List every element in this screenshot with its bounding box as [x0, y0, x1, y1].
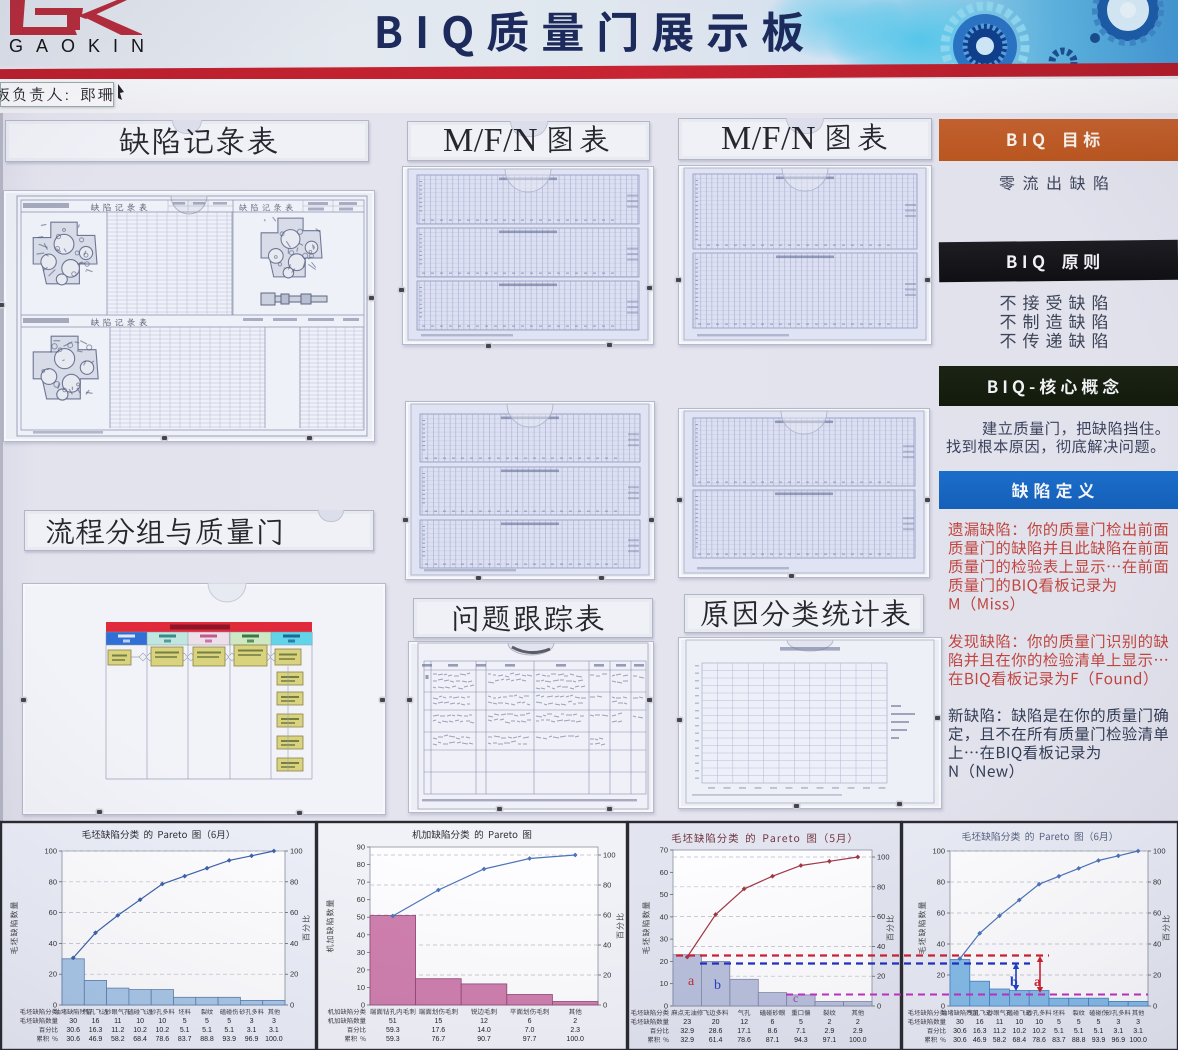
svg-text:40: 40	[357, 930, 365, 939]
svg-text:3.1: 3.1	[1133, 1028, 1143, 1035]
svg-text:60: 60	[660, 868, 668, 877]
svg-text:16: 16	[92, 1018, 100, 1025]
svg-text:10.2: 10.2	[1032, 1028, 1046, 1035]
svg-text:12: 12	[480, 1018, 488, 1025]
svg-text:51: 51	[389, 1018, 397, 1025]
svg-text:40: 40	[603, 941, 611, 950]
svg-text:78.6: 78.6	[1032, 1037, 1046, 1044]
svg-text:M/F/N: M/F/N	[721, 120, 816, 157]
svg-text:3: 3	[1116, 1019, 1120, 1026]
svg-text:23: 23	[683, 1019, 691, 1026]
svg-text:40: 40	[937, 940, 945, 949]
svg-text:3: 3	[250, 1018, 254, 1025]
svg-text:100: 100	[44, 847, 57, 856]
svg-text:68.4: 68.4	[133, 1036, 147, 1043]
svg-text:96.9: 96.9	[1111, 1037, 1125, 1044]
svg-text:83.7: 83.7	[178, 1036, 192, 1043]
svg-text:0: 0	[877, 1002, 881, 1011]
svg-text:100.0: 100.0	[566, 1036, 584, 1043]
svg-text:59.3: 59.3	[386, 1027, 400, 1034]
svg-text:6: 6	[771, 1019, 775, 1026]
svg-text:30.6: 30.6	[953, 1028, 967, 1035]
svg-text:30.6: 30.6	[66, 1027, 80, 1034]
svg-text:20: 20	[290, 970, 298, 979]
svg-text:10: 10	[158, 1018, 166, 1025]
svg-text:50: 50	[357, 913, 365, 922]
svg-text:10: 10	[660, 979, 668, 988]
svg-text:59.3: 59.3	[386, 1036, 400, 1043]
svg-text:80: 80	[290, 877, 298, 886]
svg-text:80: 80	[1153, 878, 1161, 887]
svg-text:5.1: 5.1	[202, 1027, 212, 1034]
svg-text:46.9: 46.9	[89, 1036, 103, 1043]
svg-text:0: 0	[53, 1001, 57, 1010]
svg-text:3.1: 3.1	[1113, 1028, 1123, 1035]
svg-text:70: 70	[357, 878, 365, 887]
svg-text:30: 30	[956, 1019, 964, 1026]
svg-text:100: 100	[603, 851, 616, 860]
svg-text:8.6: 8.6	[768, 1028, 778, 1035]
svg-text:2: 2	[827, 1019, 831, 1026]
svg-text:10: 10	[136, 1018, 144, 1025]
svg-text:2: 2	[573, 1018, 577, 1025]
svg-text:80: 80	[49, 877, 57, 886]
svg-text:60: 60	[290, 908, 298, 917]
svg-text:58.2: 58.2	[993, 1037, 1007, 1044]
svg-text:76.7: 76.7	[432, 1036, 446, 1043]
svg-text:20: 20	[877, 972, 885, 981]
svg-text:96.9: 96.9	[245, 1036, 259, 1043]
svg-text:40: 40	[49, 939, 57, 948]
svg-text:10: 10	[1035, 1019, 1043, 1026]
svg-text:32.9: 32.9	[680, 1037, 694, 1044]
svg-text:30: 30	[357, 948, 365, 957]
svg-text:20: 20	[1153, 971, 1161, 980]
svg-text:16: 16	[976, 1019, 984, 1026]
svg-text:17.6: 17.6	[432, 1027, 446, 1034]
svg-text:88.8: 88.8	[200, 1036, 214, 1043]
svg-text:97.1: 97.1	[823, 1037, 837, 1044]
svg-text:30: 30	[69, 1018, 77, 1025]
svg-text:0: 0	[941, 1002, 945, 1011]
svg-text:5: 5	[205, 1018, 209, 1025]
svg-text:97.7: 97.7	[523, 1036, 537, 1043]
svg-text:58.2: 58.2	[111, 1036, 125, 1043]
svg-text:5.1: 5.1	[1094, 1028, 1104, 1035]
svg-text:100.0: 100.0	[265, 1036, 283, 1043]
svg-text:b: b	[714, 978, 721, 993]
svg-text:93.9: 93.9	[1092, 1037, 1106, 1044]
svg-text:30.6: 30.6	[953, 1037, 967, 1044]
svg-text:a: a	[688, 974, 695, 989]
svg-text:M/F/N: M/F/N	[443, 122, 538, 159]
svg-text:60: 60	[1153, 909, 1161, 918]
svg-text:40: 40	[660, 912, 668, 921]
svg-text:14.0: 14.0	[477, 1027, 491, 1034]
svg-text:78.6: 78.6	[155, 1036, 169, 1043]
svg-text:68.4: 68.4	[1012, 1037, 1026, 1044]
svg-text:5.1: 5.1	[1054, 1028, 1064, 1035]
svg-text:10.2: 10.2	[133, 1027, 147, 1034]
svg-text:10.2: 10.2	[1012, 1028, 1026, 1035]
svg-text:7.0: 7.0	[525, 1027, 535, 1034]
svg-text:20: 20	[49, 970, 57, 979]
svg-text:32.9: 32.9	[680, 1028, 694, 1035]
svg-text:5: 5	[183, 1018, 187, 1025]
svg-text:88.8: 88.8	[1072, 1037, 1086, 1044]
svg-text:3: 3	[1136, 1019, 1140, 1026]
svg-text:46.9: 46.9	[973, 1037, 987, 1044]
svg-text:28.6: 28.6	[709, 1028, 723, 1035]
svg-text:20: 20	[937, 971, 945, 980]
svg-text:87.1: 87.1	[766, 1037, 780, 1044]
svg-text:10.2: 10.2	[155, 1027, 169, 1034]
svg-text:78.6: 78.6	[737, 1037, 751, 1044]
svg-text:20: 20	[603, 971, 611, 980]
svg-text:100.0: 100.0	[1129, 1037, 1147, 1044]
svg-text:40: 40	[1153, 940, 1161, 949]
svg-text:7.1: 7.1	[796, 1028, 806, 1035]
svg-text:2.9: 2.9	[825, 1028, 835, 1035]
svg-text:a: a	[1034, 975, 1041, 990]
svg-text:40: 40	[290, 939, 298, 948]
svg-text:11: 11	[114, 1018, 121, 1025]
svg-text:17.1: 17.1	[737, 1028, 751, 1035]
svg-text:2.9: 2.9	[853, 1028, 863, 1035]
svg-text:3.1: 3.1	[269, 1027, 279, 1034]
svg-text:30: 30	[660, 935, 668, 944]
svg-text:11.2: 11.2	[111, 1027, 124, 1034]
svg-text:5.1: 5.1	[180, 1027, 190, 1034]
svg-text:0: 0	[361, 1001, 365, 1010]
svg-text:90: 90	[357, 843, 365, 852]
svg-text:60: 60	[357, 895, 365, 904]
svg-text:5: 5	[1097, 1019, 1101, 1026]
svg-text:100: 100	[290, 847, 303, 856]
svg-text:20: 20	[357, 965, 365, 974]
svg-text:5.1: 5.1	[1074, 1028, 1084, 1035]
svg-text:10: 10	[1015, 1019, 1023, 1026]
svg-text:3.1: 3.1	[247, 1027, 257, 1034]
svg-text:60: 60	[937, 909, 945, 918]
svg-text:94.3: 94.3	[794, 1037, 808, 1044]
svg-text:0: 0	[290, 1001, 294, 1010]
svg-text:60: 60	[877, 912, 885, 921]
svg-text:40: 40	[877, 942, 885, 951]
svg-text:3: 3	[272, 1018, 276, 1025]
svg-text:83.7: 83.7	[1052, 1037, 1066, 1044]
svg-text:80: 80	[603, 881, 611, 890]
svg-text:5: 5	[1057, 1019, 1061, 1026]
svg-text:5: 5	[1077, 1019, 1081, 1026]
svg-text:5.1: 5.1	[224, 1027, 234, 1034]
svg-text:15: 15	[435, 1018, 443, 1025]
svg-text:0: 0	[1153, 1002, 1157, 1011]
svg-text:2.3: 2.3	[570, 1027, 580, 1034]
svg-text:20: 20	[660, 957, 668, 966]
svg-text:80: 80	[937, 878, 945, 887]
svg-text:100: 100	[1153, 847, 1166, 856]
svg-text:c: c	[793, 991, 798, 1005]
svg-text:0: 0	[664, 1002, 668, 1011]
svg-text:80: 80	[877, 882, 885, 891]
svg-text:12: 12	[740, 1019, 748, 1026]
svg-text:b: b	[1010, 975, 1018, 990]
svg-text:5: 5	[799, 1019, 803, 1026]
svg-text:10: 10	[357, 983, 365, 992]
svg-text:2: 2	[856, 1019, 860, 1026]
svg-text:90.7: 90.7	[477, 1036, 491, 1043]
svg-text:100: 100	[877, 853, 890, 862]
svg-text:11.2: 11.2	[993, 1028, 1006, 1035]
svg-text:30.6: 30.6	[66, 1036, 80, 1043]
svg-text:50: 50	[660, 890, 668, 899]
svg-text:0: 0	[603, 1001, 607, 1010]
svg-text:11: 11	[996, 1019, 1003, 1026]
svg-text:6: 6	[528, 1018, 532, 1025]
svg-text:80: 80	[357, 860, 365, 869]
svg-text:5: 5	[227, 1018, 231, 1025]
svg-text:16.3: 16.3	[89, 1027, 103, 1034]
svg-text:93.9: 93.9	[222, 1036, 236, 1043]
svg-text:16.3: 16.3	[973, 1028, 987, 1035]
svg-text:100.0: 100.0	[849, 1037, 867, 1044]
svg-text:100: 100	[932, 847, 945, 856]
svg-text:70: 70	[660, 846, 668, 855]
svg-text:20: 20	[712, 1019, 720, 1026]
svg-text:60: 60	[49, 908, 57, 917]
svg-text:61.4: 61.4	[709, 1037, 723, 1044]
svg-text:60: 60	[603, 911, 611, 920]
